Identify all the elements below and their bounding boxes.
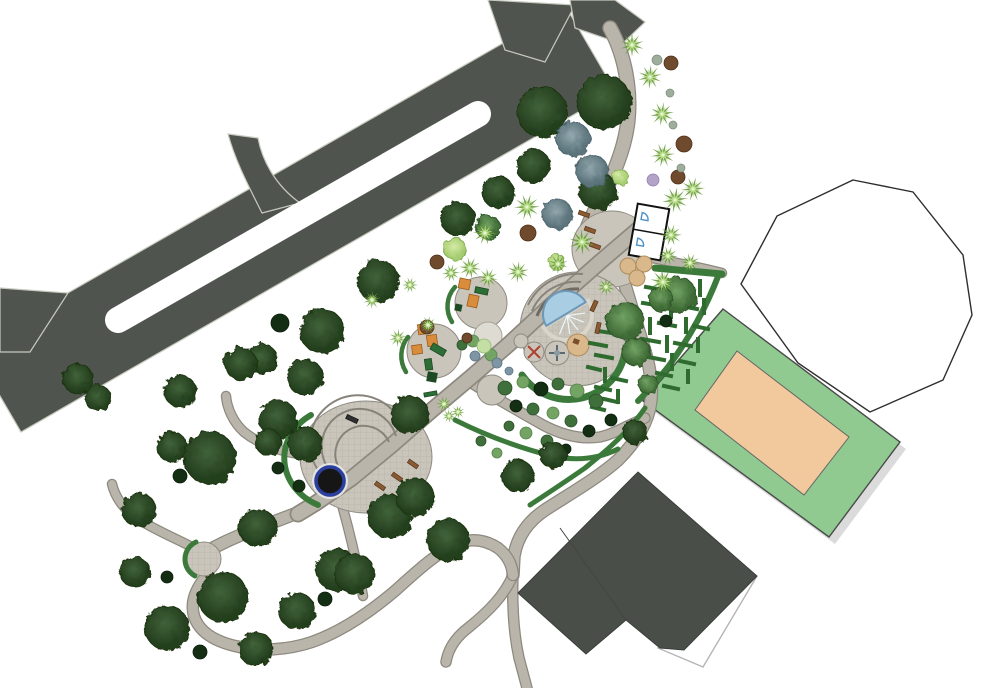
tree (427, 519, 469, 561)
shrub (462, 333, 472, 343)
tree (357, 260, 399, 302)
tree (622, 338, 650, 366)
shrub (652, 55, 662, 65)
tree (482, 176, 514, 208)
shrub (505, 367, 513, 375)
shrub (666, 89, 674, 97)
tree (576, 155, 608, 187)
shrub (271, 314, 289, 332)
tree (164, 375, 196, 407)
tree (649, 287, 673, 311)
shrub (504, 421, 514, 431)
shrub (552, 378, 564, 390)
tree (225, 348, 257, 380)
shrub (470, 351, 480, 361)
tree (239, 632, 273, 666)
shrub (430, 255, 444, 269)
site-plan-screenshot (0, 0, 990, 688)
shrub (477, 339, 491, 353)
shrub (520, 225, 536, 241)
tree (335, 554, 375, 594)
tree (255, 429, 281, 455)
picnic-table (629, 270, 645, 286)
shrub (527, 403, 539, 415)
tree (396, 478, 434, 516)
shrub (669, 121, 677, 129)
tree (145, 606, 189, 650)
shrub (272, 462, 284, 474)
shrub (671, 170, 685, 184)
shrub (534, 382, 548, 396)
tree (279, 593, 315, 629)
shrub (565, 415, 577, 427)
tree (606, 302, 644, 340)
tree (157, 432, 187, 462)
tree (85, 385, 111, 411)
shrub (520, 427, 532, 439)
shrub (676, 136, 692, 152)
picnic-table (636, 256, 652, 272)
tree (502, 460, 534, 492)
tree (184, 432, 236, 484)
shrub (492, 448, 502, 458)
shrub (476, 436, 486, 446)
sand-circle (567, 334, 589, 356)
shrub (498, 381, 512, 395)
tree (391, 396, 429, 434)
tree (300, 309, 344, 353)
shrub (161, 571, 173, 583)
shrub (492, 358, 502, 368)
shrub (647, 174, 659, 186)
round-pond (316, 467, 344, 495)
shrub (318, 592, 332, 606)
tree (122, 493, 156, 527)
tree (444, 238, 466, 260)
shrub (660, 315, 672, 327)
shrub (510, 400, 522, 412)
tree (441, 202, 475, 236)
shrub (570, 384, 584, 398)
tree (198, 572, 248, 622)
shrub (293, 480, 305, 492)
shrub (664, 56, 678, 70)
site-plan-canvas (0, 0, 990, 688)
shrub (547, 407, 559, 419)
tree (288, 427, 322, 461)
tree (556, 122, 590, 156)
shrub (193, 645, 207, 659)
shrub (583, 425, 595, 437)
tree (516, 149, 550, 183)
shrub (517, 376, 529, 388)
tree (612, 169, 628, 185)
tree (542, 199, 572, 229)
shrub (173, 469, 187, 483)
tree (638, 374, 658, 394)
tree (287, 359, 323, 395)
tree (239, 509, 277, 547)
shrub (605, 414, 617, 426)
tree (623, 420, 647, 444)
shrub (677, 164, 685, 172)
tree (540, 442, 566, 468)
shrub (589, 394, 603, 408)
tree (577, 75, 631, 129)
tree (120, 557, 150, 587)
